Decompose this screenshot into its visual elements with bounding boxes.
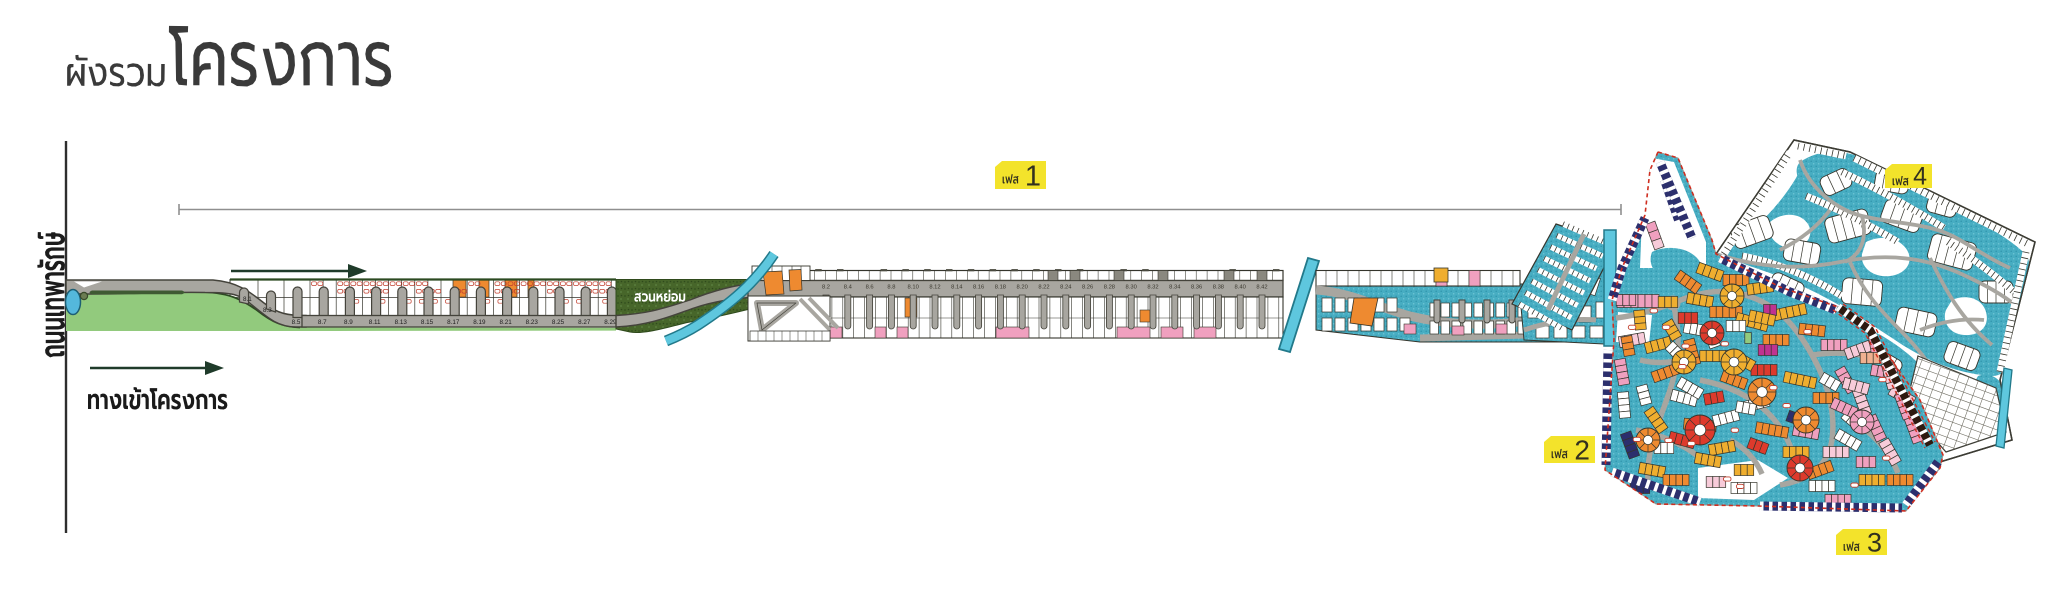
- svg-text:8.8: 8.8: [887, 285, 895, 291]
- svg-text:3: 3: [1867, 528, 1882, 558]
- svg-text:8.42: 8.42: [1256, 285, 1267, 291]
- svg-text:8.12: 8.12: [929, 285, 940, 291]
- svg-text:8.1: 8.1: [243, 296, 252, 303]
- svg-text:8.29: 8.29: [604, 319, 617, 326]
- svg-text:8.7: 8.7: [318, 319, 327, 326]
- svg-text:8.17: 8.17: [447, 319, 460, 326]
- svg-text:8.28: 8.28: [1104, 285, 1115, 291]
- svg-text:8.10: 8.10: [908, 285, 919, 291]
- svg-text:2: 2: [1574, 435, 1590, 466]
- svg-text:1: 1: [1025, 161, 1041, 193]
- svg-text:8.23: 8.23: [526, 319, 539, 326]
- svg-text:8.38: 8.38: [1213, 285, 1224, 291]
- svg-text:8.4: 8.4: [844, 285, 853, 291]
- svg-text:8.40: 8.40: [1235, 285, 1246, 291]
- svg-text:4: 4: [1913, 163, 1927, 191]
- svg-text:8.15: 8.15: [421, 319, 434, 326]
- svg-text:8.24: 8.24: [1060, 285, 1072, 291]
- svg-text:8.16: 8.16: [973, 285, 984, 291]
- svg-text:8.26: 8.26: [1082, 285, 1093, 291]
- svg-text:8.32: 8.32: [1147, 285, 1158, 291]
- svg-text:8.9: 8.9: [344, 319, 353, 326]
- svg-text:8.20: 8.20: [1017, 285, 1028, 291]
- svg-text:8.18: 8.18: [995, 285, 1006, 291]
- svg-text:8.14: 8.14: [951, 285, 963, 291]
- svg-text:8.22: 8.22: [1038, 285, 1049, 291]
- svg-text:8.21: 8.21: [499, 319, 512, 326]
- svg-text:8.3: 8.3: [263, 307, 272, 314]
- svg-text:8.13: 8.13: [395, 319, 408, 326]
- svg-text:8.11: 8.11: [369, 319, 381, 326]
- svg-text:8.6: 8.6: [866, 285, 874, 291]
- svg-text:8.25: 8.25: [552, 319, 565, 326]
- svg-text:8.5: 8.5: [292, 319, 301, 326]
- svg-text:8.34: 8.34: [1169, 285, 1181, 291]
- svg-text:8.2: 8.2: [822, 285, 830, 291]
- svg-text:8.19: 8.19: [473, 319, 486, 326]
- svg-text:8.30: 8.30: [1126, 285, 1137, 291]
- svg-text:8.36: 8.36: [1191, 285, 1202, 291]
- svg-text:8.27: 8.27: [578, 319, 591, 326]
